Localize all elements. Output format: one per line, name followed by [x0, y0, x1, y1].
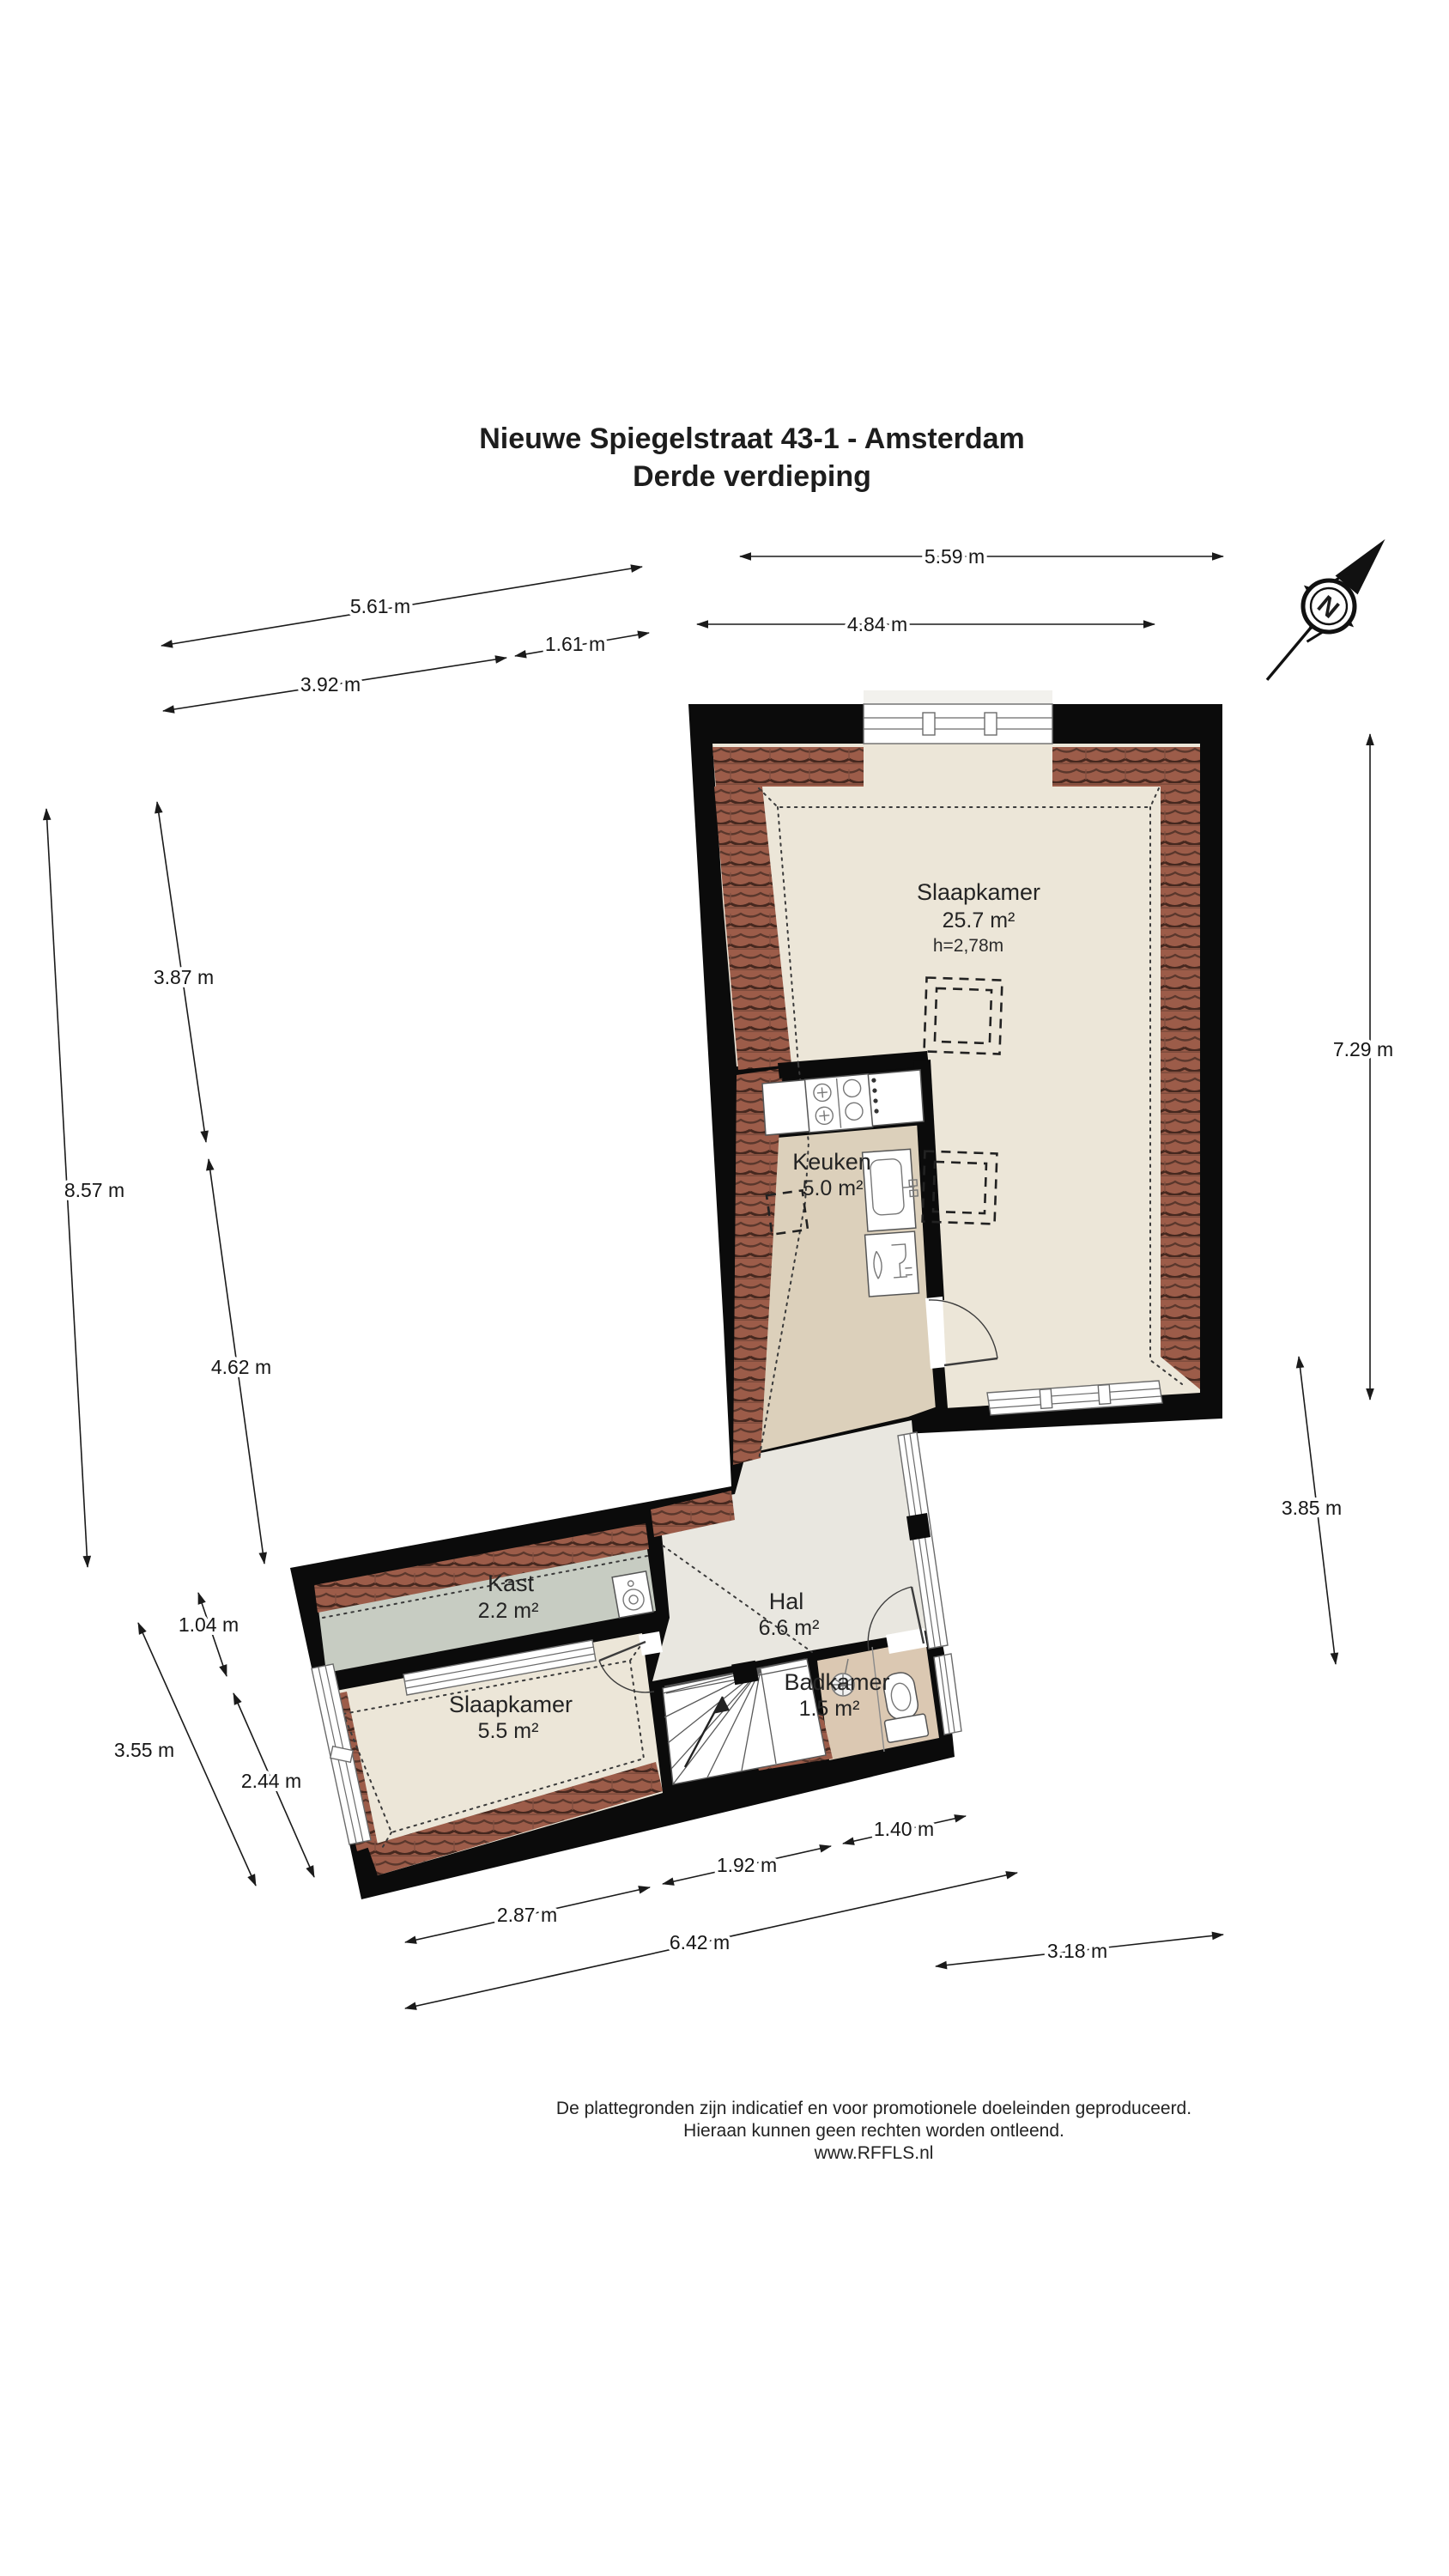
label-keuken-name: Keuken — [792, 1149, 871, 1175]
label-slaapkamer2-area: 5.5 m² — [478, 1719, 539, 1743]
stove — [805, 1073, 881, 1133]
label-slaapkamer1-name: Slaapkamer — [917, 879, 1040, 905]
dim-161: 1.61 m — [545, 633, 605, 655]
label-slaapkamer2-name: Slaapkamer — [449, 1692, 573, 1717]
dim-192: 1.92 m — [717, 1854, 777, 1876]
boiler — [612, 1571, 653, 1618]
dim-140: 1.40 m — [874, 1818, 934, 1840]
label-hal-area: 6.6 m² — [759, 1616, 820, 1640]
label-badkamer-name: Badkamer — [784, 1669, 889, 1695]
footer-disclaimer: De plattegronden zijn indicatief en voor… — [556, 2099, 1191, 2163]
title-address: Nieuwe Spiegelstraat 43-1 - Amsterdam — [479, 422, 1025, 455]
compass-north-icon: N — [1242, 518, 1410, 701]
dim-287: 2.87 m — [497, 1904, 557, 1926]
dim-318: 3.18 m — [1047, 1940, 1107, 1962]
dim-462: 4.62 m — [211, 1356, 271, 1378]
title-floor: Derde verdieping — [633, 460, 871, 493]
dishwasher — [865, 1231, 919, 1297]
dim-857: 8.57 m — [64, 1179, 124, 1201]
label-kast-area: 2.2 m² — [478, 1599, 539, 1623]
dim-392: 3.92 m — [300, 673, 361, 696]
page-title: Nieuwe Spiegelstraat 43-1 - Amsterdam De… — [479, 422, 1025, 493]
label-badkamer-area: 1.5 m² — [799, 1697, 860, 1721]
footer-line3: www.RFFLS.nl — [814, 2143, 934, 2163]
dim-484: 4.84 m — [847, 613, 907, 635]
dim-385: 3.85 m — [1282, 1497, 1342, 1519]
floorplan-canvas: Nieuwe Spiegelstraat 43-1 - Amsterdam De… — [0, 0, 1449, 2576]
dim-559: 5.59 m — [925, 545, 985, 568]
label-slaapkamer1-height: h=2,78m — [933, 936, 1003, 956]
label-slaapkamer1-area: 25.7 m² — [943, 908, 1016, 933]
dim-244: 2.44 m — [241, 1770, 301, 1792]
footer-line2: Hieraan kunnen geen rechten worden ontle… — [683, 2121, 1064, 2141]
dim-104: 1.04 m — [179, 1613, 239, 1636]
dim-355: 3.55 m — [114, 1739, 174, 1761]
dim-642: 6.42 m — [670, 1931, 730, 1953]
label-kast-name: Kast — [488, 1571, 535, 1596]
window-top — [864, 690, 1052, 744]
dim-387: 3.87 m — [154, 966, 214, 988]
stair-newel — [731, 1661, 759, 1685]
footer-line1: De plattegronden zijn indicatief en voor… — [556, 2099, 1191, 2118]
label-keuken-area: 5.0 m² — [803, 1176, 864, 1200]
label-hal-name: Hal — [769, 1589, 804, 1614]
dim-561: 5.61 m — [350, 595, 410, 617]
dim-729: 7.29 m — [1333, 1038, 1393, 1060]
